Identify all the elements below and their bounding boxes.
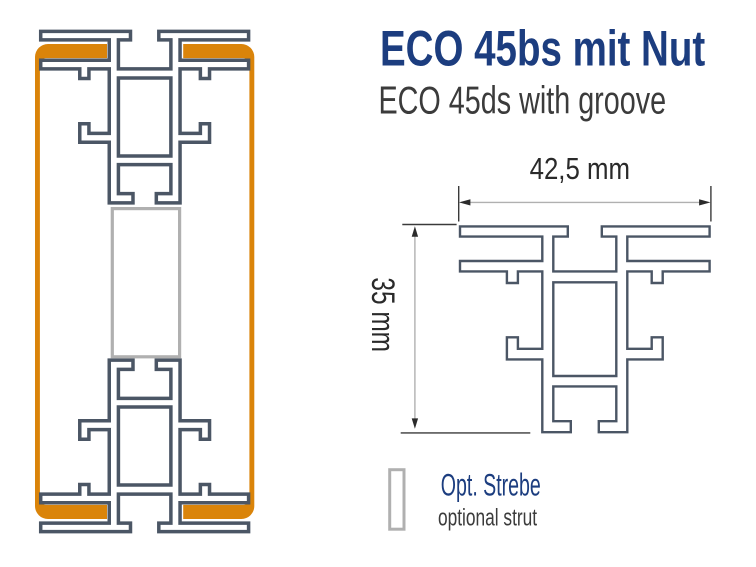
svg-text:35 mm: 35 mm (365, 277, 401, 352)
svg-text:ECO 45ds with groove: ECO 45ds with groove (379, 79, 667, 122)
svg-text:ECO 45bs mit Nut: ECO 45bs mit Nut (380, 19, 705, 76)
svg-text:optional strut: optional strut (438, 505, 537, 532)
svg-text:Opt. Strebe: Opt. Strebe (441, 468, 541, 503)
svg-text:42,5 mm: 42,5 mm (530, 152, 630, 186)
